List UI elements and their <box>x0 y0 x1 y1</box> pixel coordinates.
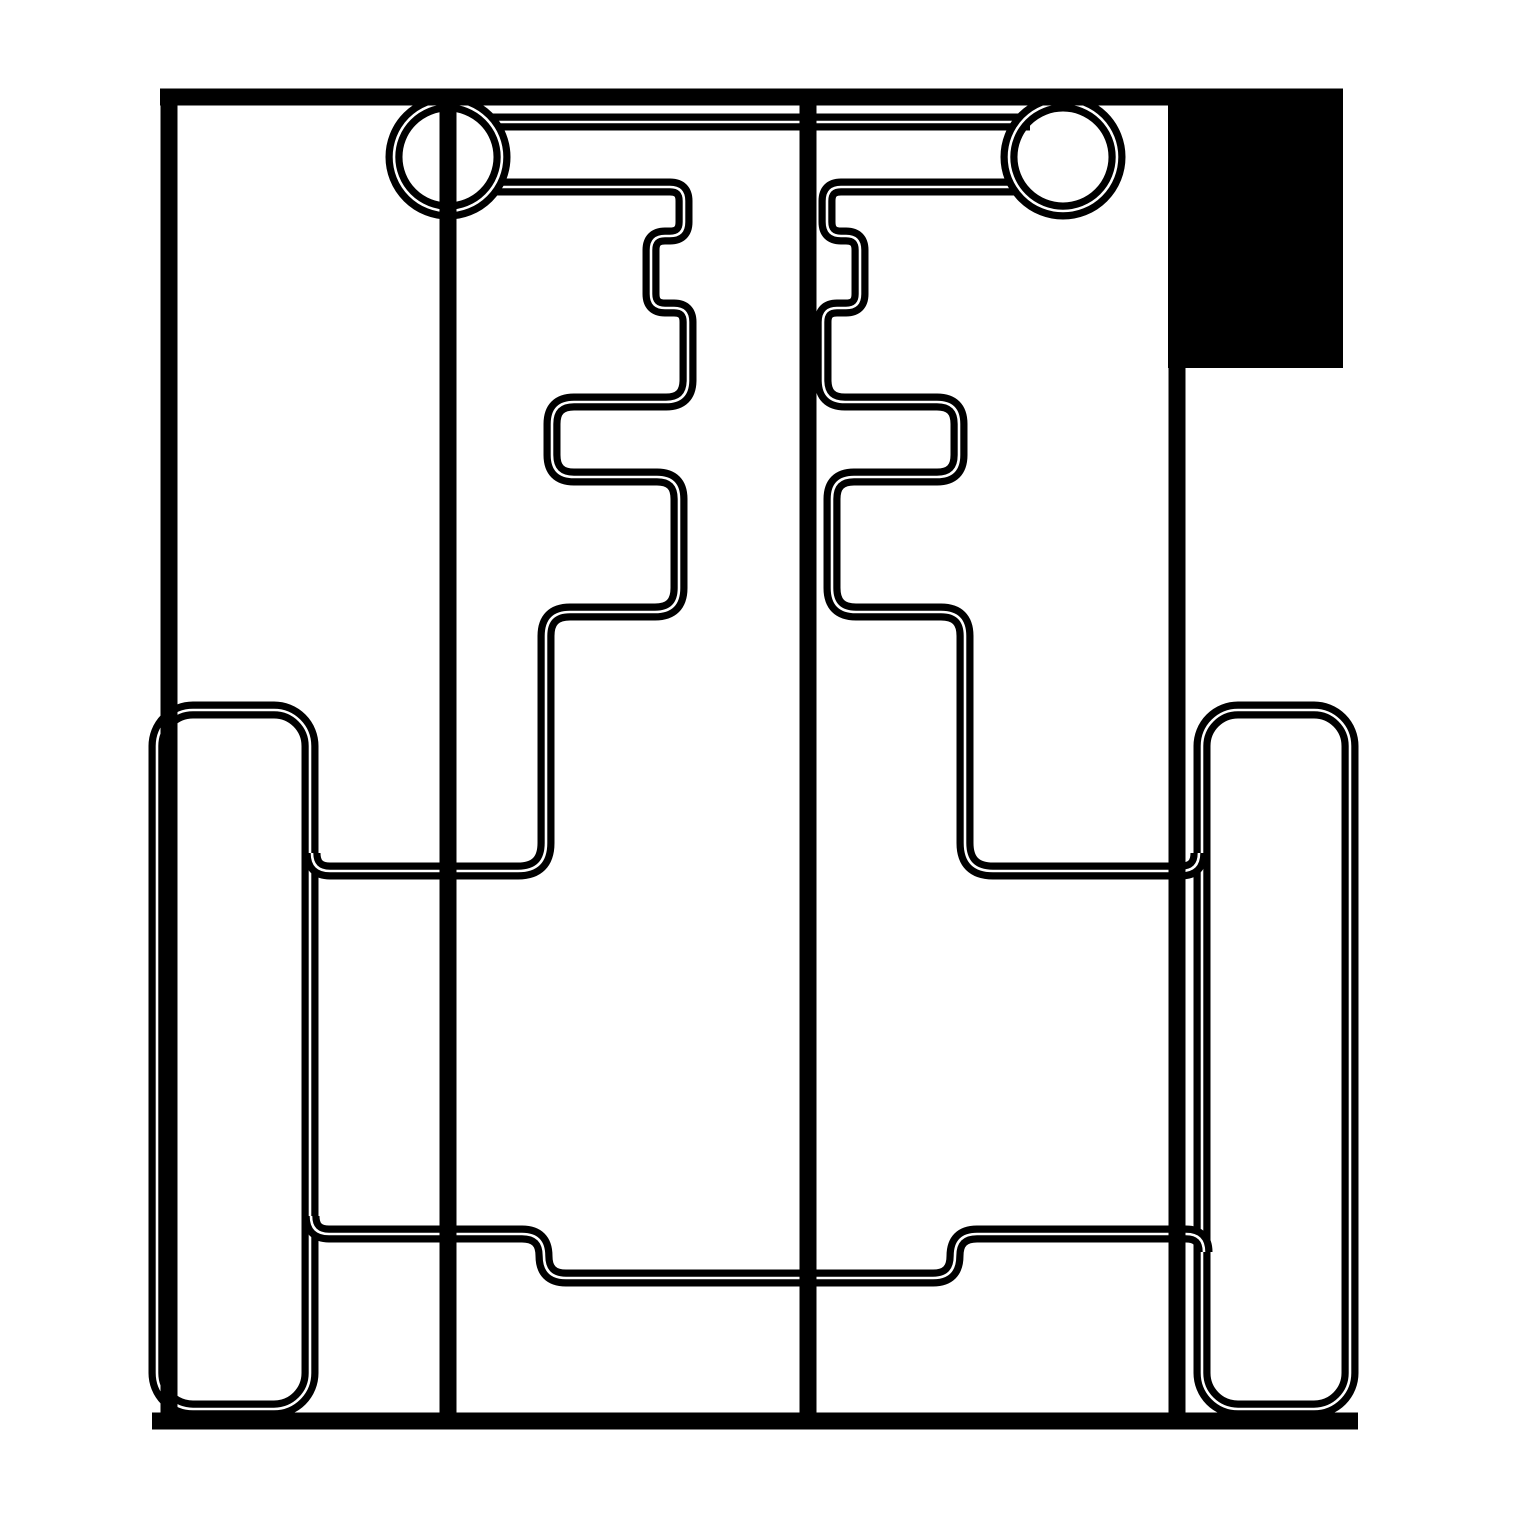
right-wheel-outline <box>1202 710 1350 1409</box>
left-comb-path-seam <box>312 187 688 871</box>
left-comb-path <box>312 187 688 871</box>
right-comb-path-seam <box>823 187 1199 871</box>
right-wheel-outline-seam <box>1202 710 1350 1409</box>
drawing-canvas <box>0 0 1519 1519</box>
corner-solid-rect <box>1168 89 1343 368</box>
right-comb-path <box>823 187 1199 871</box>
left-wheel-outline-seam <box>157 710 310 1409</box>
left-wheel-outline <box>157 710 310 1409</box>
drawing-svg <box>0 0 1519 1519</box>
right-hub-circle-seam <box>1009 103 1117 211</box>
